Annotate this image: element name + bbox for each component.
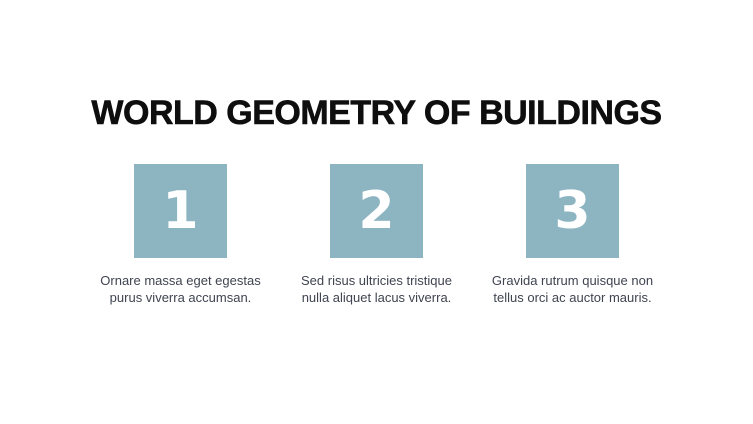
step-caption-2-line-1: Sed risus ultricies tristique <box>301 272 452 289</box>
step-square-3: 3 <box>526 164 619 258</box>
presentation-slide: WORLD GEOMETRY OF BUILDINGS 1 Ornare mas… <box>0 0 753 424</box>
step-caption-3-line-2: tellus orci ac auctor mauris. <box>492 289 653 306</box>
step-item-3: 3 Gravida rutrum quisque non tellus orci… <box>480 164 666 306</box>
step-square-1: 1 <box>134 164 227 258</box>
step-caption-1-line-2: purus viverra accumsan. <box>100 289 260 306</box>
step-caption-2-line-2: nulla aliquet lacus viverra. <box>301 289 452 306</box>
slide-title: WORLD GEOMETRY OF BUILDINGS <box>0 0 753 134</box>
step-caption-2: Sed risus ultricies tristique nulla aliq… <box>301 272 452 306</box>
step-item-2: 2 Sed risus ultricies tristique nulla al… <box>284 164 470 306</box>
step-caption-1: Ornare massa eget egestas purus viverra … <box>100 272 260 306</box>
step-square-2: 2 <box>330 164 423 258</box>
step-item-1: 1 Ornare massa eget egestas purus viverr… <box>88 164 274 306</box>
steps-row: 1 Ornare massa eget egestas purus viverr… <box>0 164 753 306</box>
step-number-3: 3 <box>554 185 590 237</box>
step-caption-3: Gravida rutrum quisque non tellus orci a… <box>492 272 653 306</box>
step-number-1: 1 <box>162 185 198 237</box>
step-caption-3-line-1: Gravida rutrum quisque non <box>492 272 653 289</box>
step-caption-1-line-1: Ornare massa eget egestas <box>100 272 260 289</box>
step-number-2: 2 <box>358 185 394 237</box>
